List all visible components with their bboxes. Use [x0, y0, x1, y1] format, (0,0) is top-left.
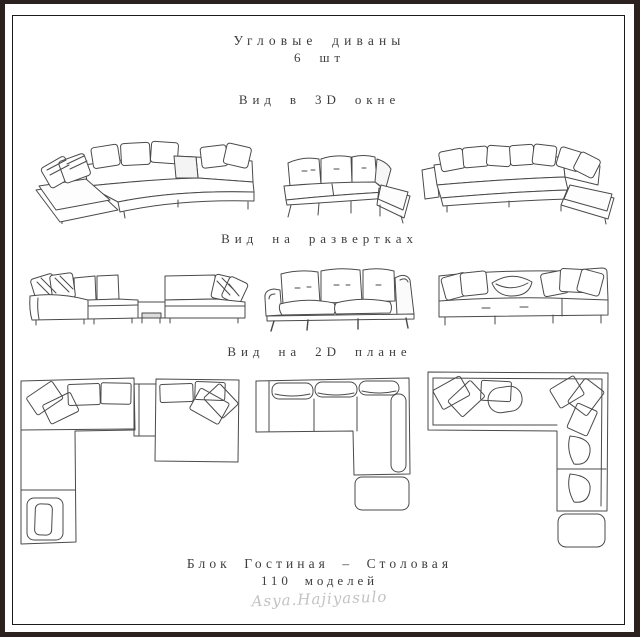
figure-plan-sofa-2 [131, 374, 243, 468]
footer-block-title: Блок Гостиная – Столовая [5, 556, 634, 572]
corner-sofa-3d-sketch-1 [26, 128, 266, 224]
figure-elevation-sofa-3 [432, 254, 620, 332]
piece-count: 6 шт [5, 50, 634, 66]
section-title-unfolds: Вид на развертках [5, 231, 634, 247]
figure-3d-corner-sofa-1 [26, 128, 266, 224]
corner-sofa-3d-sketch-2 [274, 132, 420, 226]
figure-elevation-sofa-1 [24, 254, 252, 328]
figure-plan-sofa-3 [253, 366, 413, 512]
sofa-plan-sketch-2 [131, 374, 243, 468]
corner-sofa-3d-sketch-3 [413, 128, 619, 226]
page-title: Угловые диваны [5, 33, 634, 49]
sofa-elevation-sketch-3 [432, 254, 620, 332]
catalog-page: Угловые диваны 6 шт Вид в 3D окне [0, 0, 640, 637]
figure-3d-corner-sofa-2 [274, 132, 420, 226]
figure-plan-sofa-4 [424, 368, 612, 550]
sofa-plan-sketch-1 [16, 372, 138, 548]
sofa-elevation-sketch-2 [254, 258, 436, 332]
figure-3d-corner-sofa-3 [413, 128, 619, 226]
section-title-3d-view: Вид в 3D окне [5, 92, 634, 108]
figure-plan-sofa-1 [16, 372, 138, 548]
section-title-2d-plan: Вид на 2D плане [5, 344, 634, 360]
sofa-plan-sketch-4 [424, 368, 612, 550]
sofa-elevation-sketch-1 [24, 254, 252, 328]
figure-elevation-sofa-2 [254, 258, 436, 332]
sofa-plan-sketch-3 [253, 366, 413, 512]
